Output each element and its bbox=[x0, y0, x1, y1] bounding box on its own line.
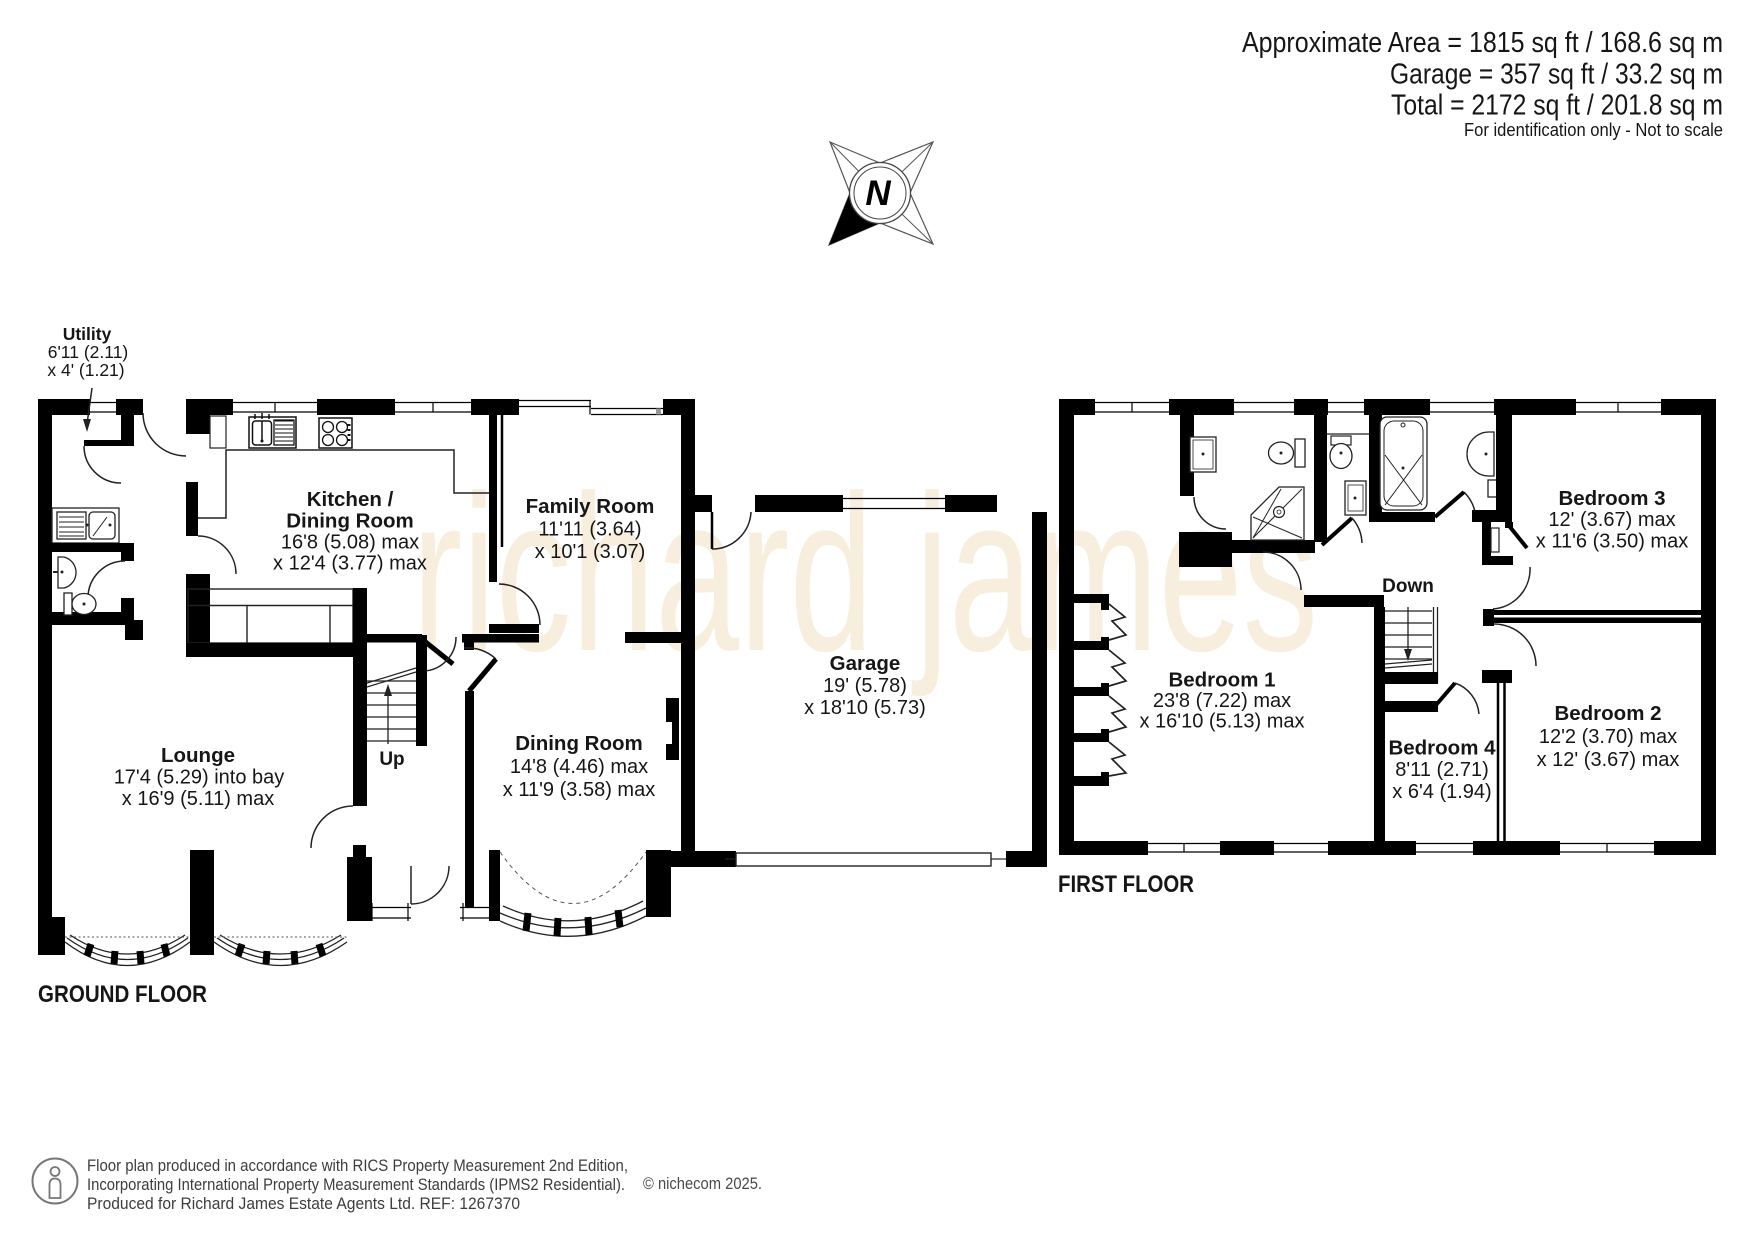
svg-text:Bedroom 3: Bedroom 3 bbox=[1558, 487, 1665, 510]
svg-text:16'8 (5.08) max: 16'8 (5.08) max bbox=[281, 532, 419, 554]
svg-text:Up: Up bbox=[379, 749, 404, 770]
svg-text:Kitchen /: Kitchen / bbox=[307, 488, 394, 511]
svg-text:For identification only - Not: For identification only - Not to scale bbox=[1464, 120, 1723, 140]
svg-text:x 11'6 (3.50) max: x 11'6 (3.50) max bbox=[1536, 531, 1688, 553]
svg-text:Utility: Utility bbox=[63, 324, 112, 344]
svg-text:12'2 (3.70) max: 12'2 (3.70) max bbox=[1539, 726, 1677, 748]
svg-text:6'11 (2.11): 6'11 (2.11) bbox=[48, 342, 129, 362]
svg-text:Family Room: Family Room bbox=[526, 495, 655, 518]
svg-text:Garage = 357 sq ft / 33.2 sq m: Garage = 357 sq ft / 33.2 sq m bbox=[1390, 59, 1723, 91]
svg-text:Produced for Richard James Est: Produced for Richard James Estate Agents… bbox=[87, 1195, 520, 1213]
svg-text:8'11 (2.71): 8'11 (2.71) bbox=[1395, 759, 1489, 781]
svg-text:Total = 2172 sq ft / 201.8 sq: Total = 2172 sq ft / 201.8 sq m bbox=[1391, 90, 1723, 122]
svg-text:14'8 (4.46) max: 14'8 (4.46) max bbox=[510, 756, 648, 778]
svg-text:Down: Down bbox=[1382, 576, 1434, 597]
svg-text:x 12' (3.67) max: x 12' (3.67) max bbox=[1537, 749, 1680, 771]
svg-text:GROUND FLOOR: GROUND FLOOR bbox=[38, 981, 207, 1008]
svg-text:x 10'1 (3.07): x 10'1 (3.07) bbox=[535, 541, 646, 563]
svg-text:Bedroom 4: Bedroom 4 bbox=[1388, 737, 1496, 760]
svg-text:Bedroom 2: Bedroom 2 bbox=[1554, 702, 1661, 725]
svg-text:Bedroom 1: Bedroom 1 bbox=[1168, 669, 1275, 692]
svg-text:Incorporating International Pr: Incorporating International Property Mea… bbox=[87, 1176, 625, 1194]
svg-text:Approximate Area = 1815 sq ft: Approximate Area = 1815 sq ft / 168.6 sq… bbox=[1242, 27, 1723, 59]
svg-text:x 6'4 (1.94): x 6'4 (1.94) bbox=[1392, 781, 1491, 803]
svg-text:x 11'9 (3.58) max: x 11'9 (3.58) max bbox=[503, 779, 655, 801]
svg-text:23'8 (7.22) max: 23'8 (7.22) max bbox=[1153, 690, 1291, 712]
svg-text:x 12'4 (3.77) max: x 12'4 (3.77) max bbox=[273, 553, 427, 575]
svg-text:N: N bbox=[865, 174, 891, 213]
svg-text:Dining Room: Dining Room bbox=[515, 732, 643, 755]
svg-text:Garage: Garage bbox=[830, 652, 901, 675]
svg-text:x 4' (1.21): x 4' (1.21) bbox=[47, 360, 124, 380]
svg-text:11'11 (3.64): 11'11 (3.64) bbox=[538, 519, 641, 541]
svg-text:Dining Room: Dining Room bbox=[286, 510, 414, 533]
svg-text:x 16'10 (5.13) max: x 16'10 (5.13) max bbox=[1139, 711, 1304, 733]
svg-text:FIRST FLOOR: FIRST FLOOR bbox=[1058, 871, 1194, 898]
svg-text:x 16'9 (5.11) max: x 16'9 (5.11) max bbox=[122, 788, 274, 810]
svg-text:12' (3.67) max: 12' (3.67) max bbox=[1548, 509, 1675, 531]
svg-text:19' (5.78): 19' (5.78) bbox=[823, 675, 907, 697]
svg-text:x 18'10 (5.73): x 18'10 (5.73) bbox=[804, 697, 926, 719]
svg-text:Floor plan produced in accorda: Floor plan produced in accordance with R… bbox=[87, 1157, 628, 1175]
svg-text:© nichecom 2025.: © nichecom 2025. bbox=[643, 1175, 762, 1193]
svg-text:17'4 (5.29) into bay: 17'4 (5.29) into bay bbox=[114, 767, 285, 789]
svg-text:Lounge: Lounge bbox=[161, 744, 235, 767]
